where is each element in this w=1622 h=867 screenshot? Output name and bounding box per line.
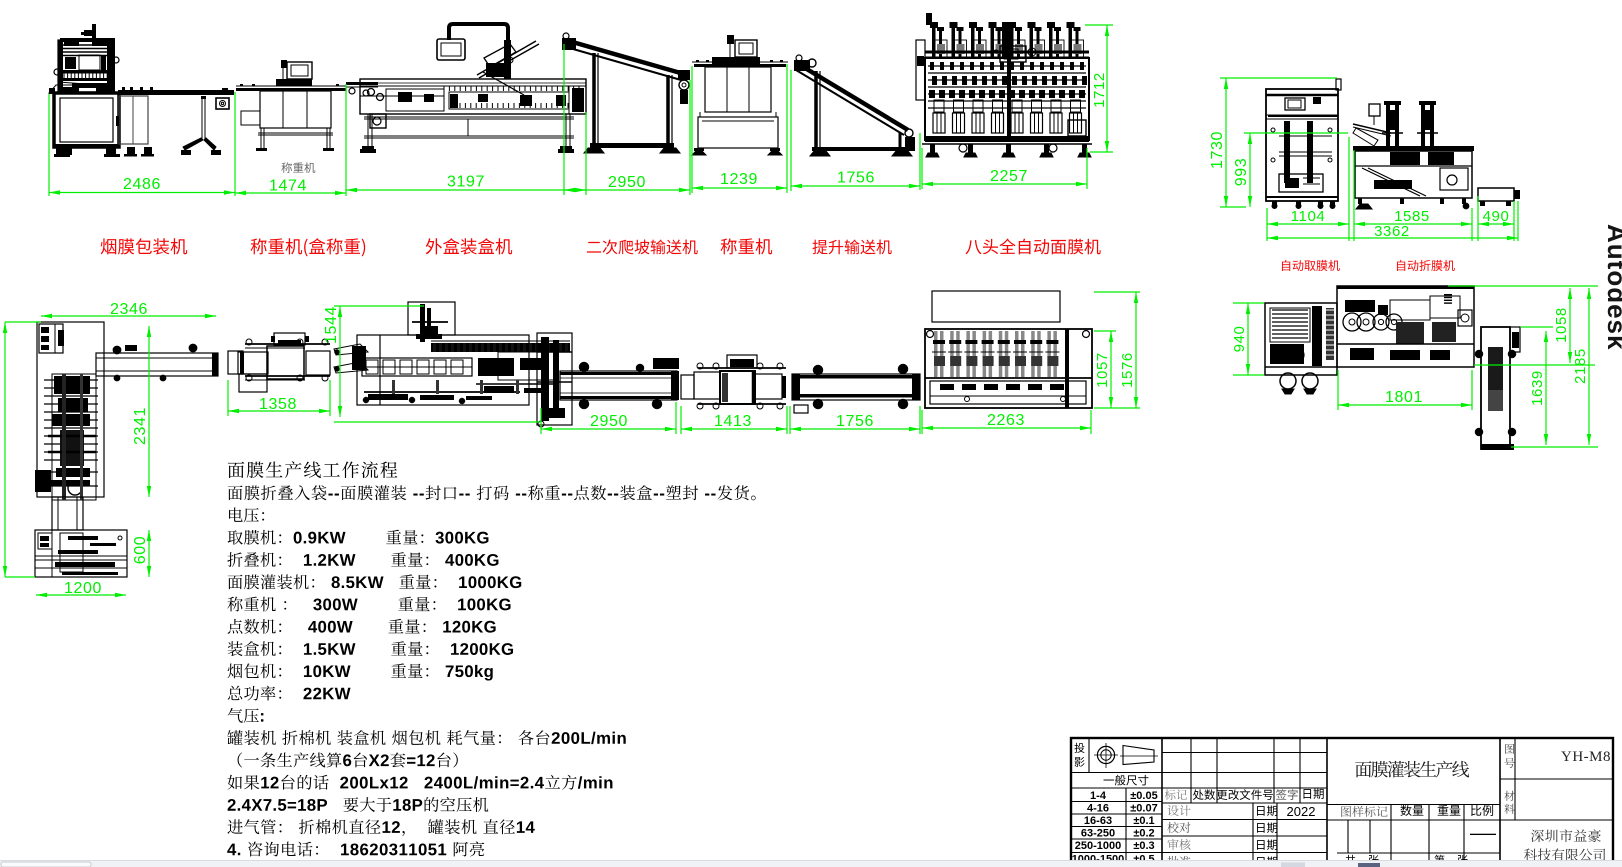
svg-text:±0.2: ±0.2 [1133,828,1154,840]
svg-text:940: 940 [1231,326,1248,353]
svg-text:1058: 1058 [1553,307,1570,343]
svg-text:2486: 2486 [123,176,161,193]
svg-text:1413: 1413 [714,413,752,430]
svg-text:1200: 1200 [64,580,102,597]
svg-text:1639: 1639 [1529,370,1546,406]
svg-text:1474: 1474 [269,178,307,195]
svg-text:——: —— [1470,826,1496,841]
svg-text:2257: 2257 [990,168,1028,185]
svg-text:3362: 3362 [1374,223,1410,240]
svg-text:±0.1: ±0.1 [1133,815,1154,827]
svg-text:2022: 2022 [1287,804,1316,819]
svg-text:1104: 1104 [1291,208,1326,225]
svg-text:2341: 2341 [132,407,149,445]
svg-text:490: 490 [1483,208,1510,225]
svg-text:1-4: 1-4 [1090,790,1107,802]
svg-text:250-1000: 250-1000 [1075,840,1122,852]
svg-text:±0.3: ±0.3 [1133,840,1154,852]
svg-text:1712: 1712 [1091,72,1108,108]
svg-text:993: 993 [1233,158,1250,187]
svg-text:1730: 1730 [1209,131,1226,169]
svg-text:63-250: 63-250 [1081,828,1115,840]
svg-text:600: 600 [132,536,149,565]
svg-text:1358: 1358 [259,396,297,413]
svg-text:Autodesk: Autodesk [1602,224,1622,350]
svg-text:1576: 1576 [1119,352,1136,388]
svg-text:1756: 1756 [836,413,874,430]
svg-text:2185: 2185 [1572,348,1589,384]
svg-text:2263: 2263 [987,412,1025,429]
svg-text:3197: 3197 [447,174,485,191]
svg-text:1756: 1756 [837,170,875,187]
svg-text:2950: 2950 [608,174,646,191]
svg-text:16-63: 16-63 [1084,815,1112,827]
svg-text:1801: 1801 [1385,389,1423,406]
svg-text:±0.07: ±0.07 [1130,803,1157,815]
svg-text:2950: 2950 [590,413,628,430]
svg-text:1239: 1239 [720,171,758,188]
svg-text:2346: 2346 [110,301,148,318]
svg-text:1544: 1544 [323,306,340,344]
svg-text:YH-M8: YH-M8 [1561,749,1611,765]
svg-text:±0.05: ±0.05 [1130,790,1157,802]
svg-text:1057: 1057 [1094,352,1111,388]
svg-text:4-16: 4-16 [1087,803,1109,815]
